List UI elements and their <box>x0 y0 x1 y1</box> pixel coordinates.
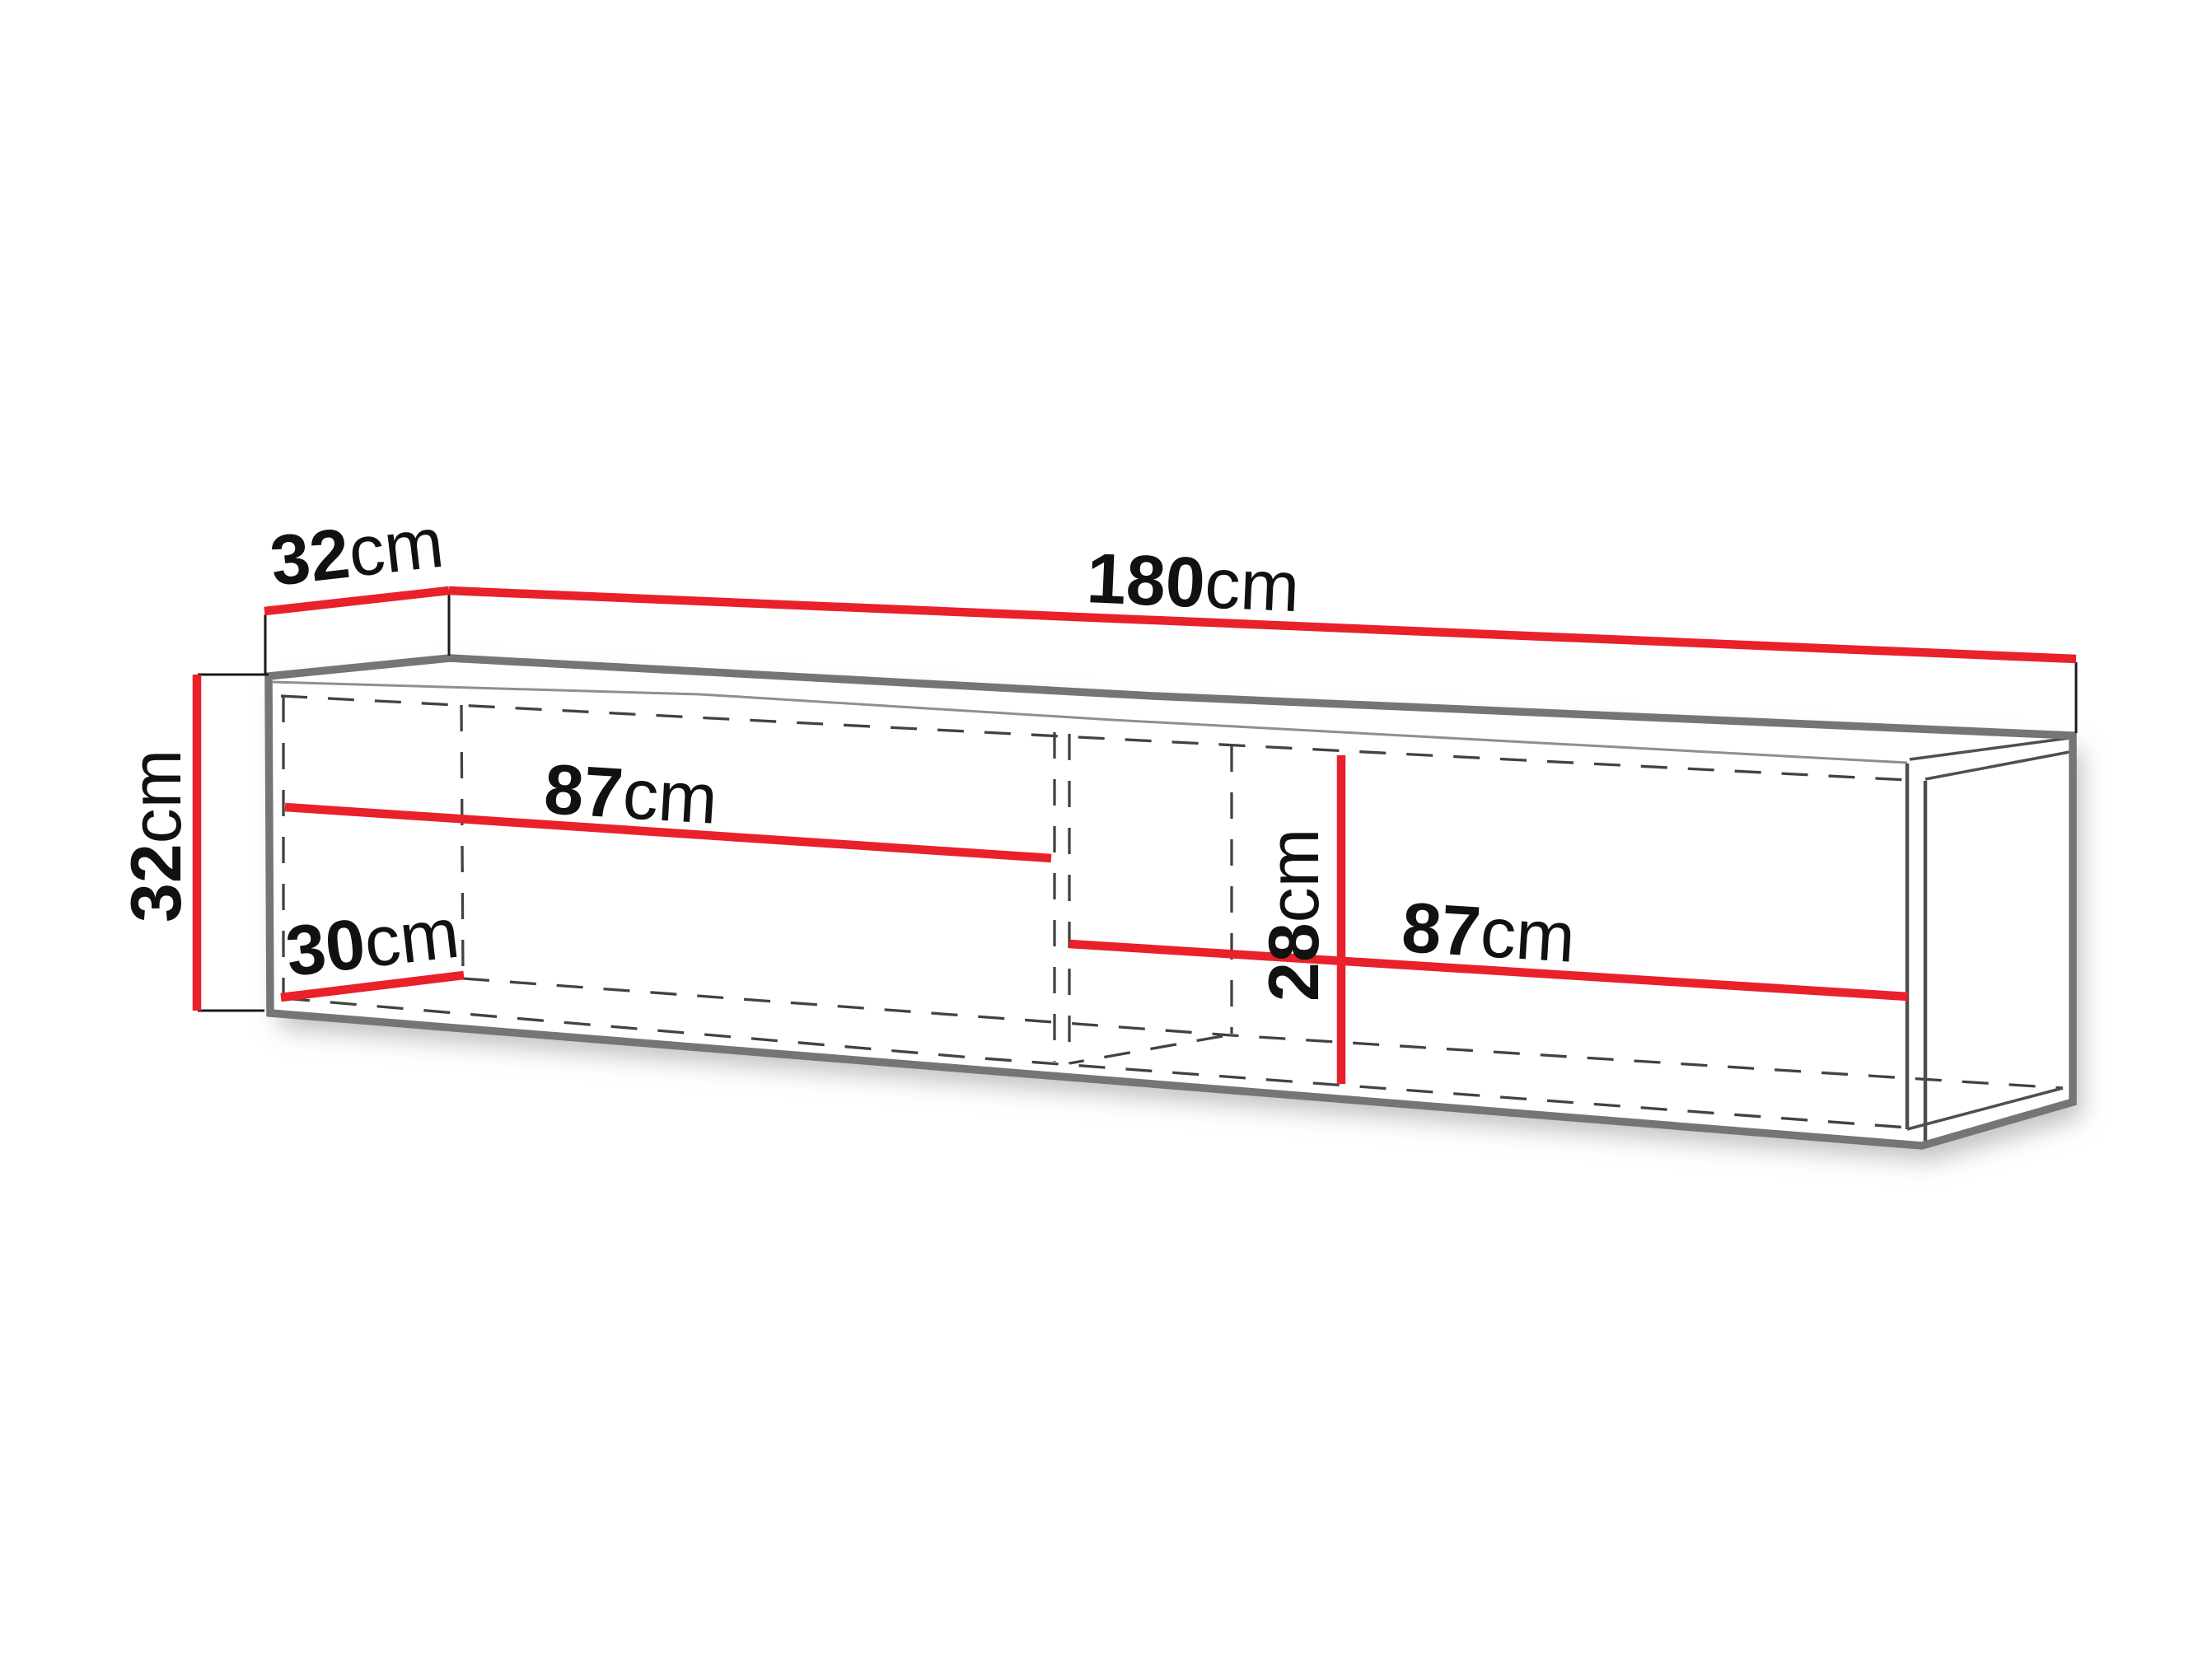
svg-text:180cm: 180cm <box>1085 539 1301 627</box>
svg-text:28cm: 28cm <box>1255 829 1334 1002</box>
svg-text:87cm: 87cm <box>1400 888 1578 978</box>
svg-text:32cm: 32cm <box>266 503 447 601</box>
svg-text:87cm: 87cm <box>542 750 720 839</box>
svg-text:32cm: 32cm <box>117 750 196 922</box>
